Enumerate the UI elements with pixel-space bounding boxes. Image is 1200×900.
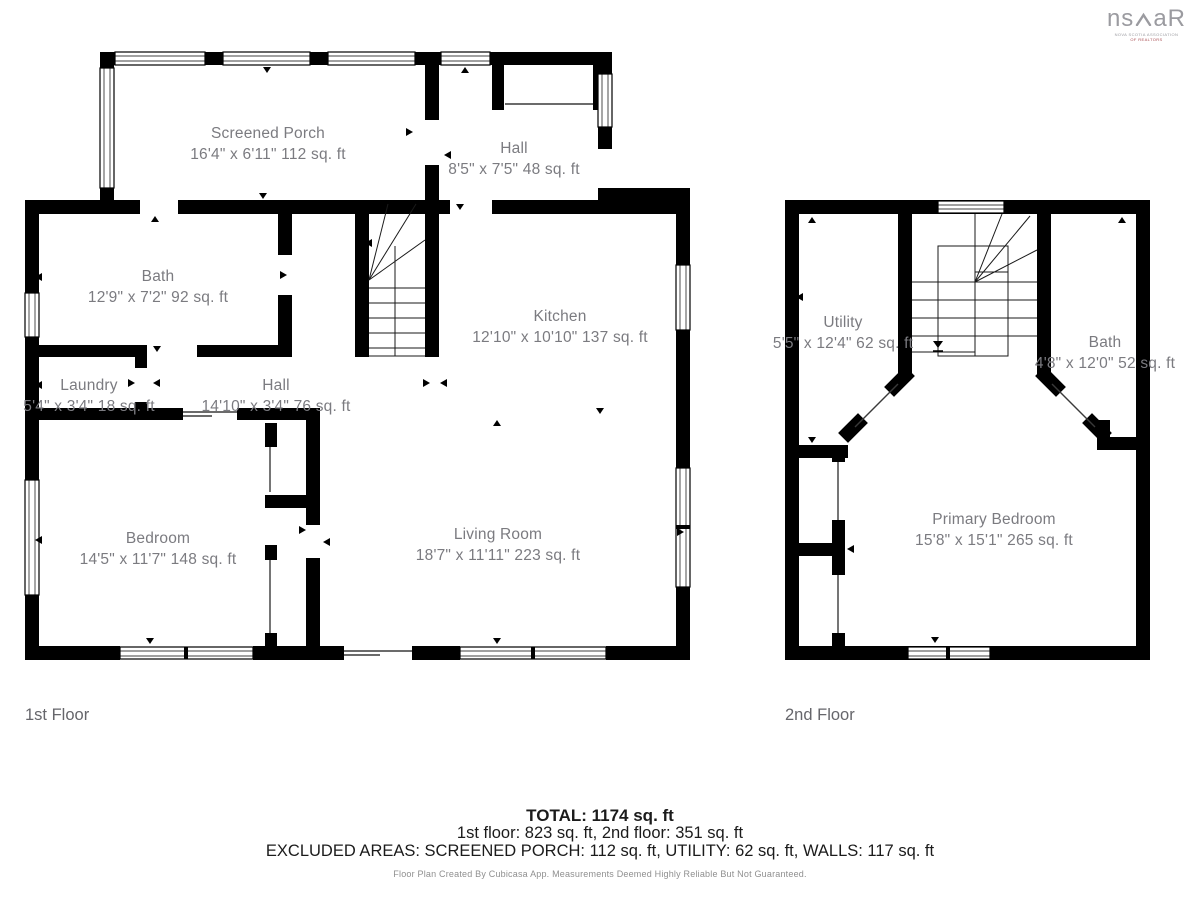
room-label-laundry: Laundry 5'4" x 3'4" 18 sq. ft	[23, 375, 154, 417]
nsar-subtitle-2: OF REALTORS	[1107, 37, 1186, 42]
room-name: Kitchen	[472, 306, 648, 327]
room-label-kitchen: Kitchen 12'10" x 10'10" 137 sq. ft	[472, 306, 648, 348]
room-label-primary-bedroom: Primary Bedroom 15'8" x 15'1" 265 sq. ft	[915, 509, 1073, 551]
room-name: Bath	[1035, 332, 1175, 353]
room-label-hall-mid: Hall 14'10" x 3'4" 76 sq. ft	[201, 375, 350, 417]
summary-total: TOTAL: 1174 sq. ft	[0, 806, 1200, 825]
area-summary: TOTAL: 1174 sq. ft 1st floor: 823 sq. ft…	[0, 806, 1200, 879]
nsar-logo: ns aR NOVA SCOTIA ASSOCIATION OF REALTOR…	[1107, 8, 1186, 42]
disclaimer-text: Floor Plan Created By Cubicasa App. Meas…	[0, 869, 1200, 879]
floor-label-1st: 1st Floor	[25, 706, 89, 725]
room-label-hall-top: Hall 8'5" x 7'5" 48 sq. ft	[448, 138, 579, 180]
room-label-bath-2f: Bath 4'8" x 12'0" 52 sq. ft	[1035, 332, 1175, 374]
room-name: Utility	[773, 312, 913, 333]
room-dims: 14'10" x 3'4" 76 sq. ft	[201, 396, 350, 417]
room-name: Hall	[448, 138, 579, 159]
floorplan-page: Screened Porch 16'4" x 6'11" 112 sq. ft …	[0, 0, 1200, 900]
summary-excluded: EXCLUDED AREAS: SCREENED PORCH: 112 sq. …	[0, 843, 1200, 861]
room-label-screened-porch: Screened Porch 16'4" x 6'11" 112 sq. ft	[190, 123, 346, 165]
room-dims: 12'9" x 7'2" 92 sq. ft	[88, 287, 228, 308]
room-dims: 18'7" x 11'11" 223 sq. ft	[416, 545, 580, 566]
room-label-living-room: Living Room 18'7" x 11'11" 223 sq. ft	[416, 524, 580, 566]
room-name: Laundry	[23, 375, 154, 396]
room-name: Hall	[201, 375, 350, 396]
nsar-wordmark-left: ns	[1107, 8, 1134, 30]
second-floor-windows	[908, 201, 1004, 659]
second-floor-diagonal-walls	[848, 376, 1102, 433]
room-dims: 12'10" x 10'10" 137 sq. ft	[472, 327, 648, 348]
room-label-bath-1f: Bath 12'9" x 7'2" 92 sq. ft	[88, 266, 228, 308]
room-name: Bath	[88, 266, 228, 287]
roof-icon	[1135, 8, 1152, 30]
second-floor-stairs	[912, 214, 1037, 356]
first-floor-stairs	[369, 204, 425, 356]
room-label-utility: Utility 5'5" x 12'4" 62 sq. ft	[773, 312, 913, 354]
room-dims: 5'5" x 12'4" 62 sq. ft	[773, 333, 913, 354]
room-dims: 8'5" x 7'5" 48 sq. ft	[448, 159, 579, 180]
room-label-bedroom: Bedroom 14'5" x 11'7" 148 sq. ft	[80, 528, 237, 570]
summary-floors: 1st floor: 823 sq. ft, 2nd floor: 351 sq…	[0, 825, 1200, 843]
floor-label-2nd: 2nd Floor	[785, 706, 855, 725]
room-dims: 4'8" x 12'0" 52 sq. ft	[1035, 353, 1175, 374]
room-name: Primary Bedroom	[915, 509, 1073, 530]
nsar-wordmark-right: aR	[1153, 8, 1186, 30]
nsar-wordmark: ns aR	[1107, 8, 1186, 30]
room-dims: 14'5" x 11'7" 148 sq. ft	[80, 549, 237, 570]
room-dims: 5'4" x 3'4" 18 sq. ft	[23, 396, 154, 417]
room-dims: 16'4" x 6'11" 112 sq. ft	[190, 144, 346, 165]
room-name: Screened Porch	[190, 123, 346, 144]
room-name: Bedroom	[80, 528, 237, 549]
floorplan-drawing	[0, 0, 1200, 900]
room-dims: 15'8" x 15'1" 265 sq. ft	[915, 530, 1073, 551]
room-name: Living Room	[416, 524, 580, 545]
